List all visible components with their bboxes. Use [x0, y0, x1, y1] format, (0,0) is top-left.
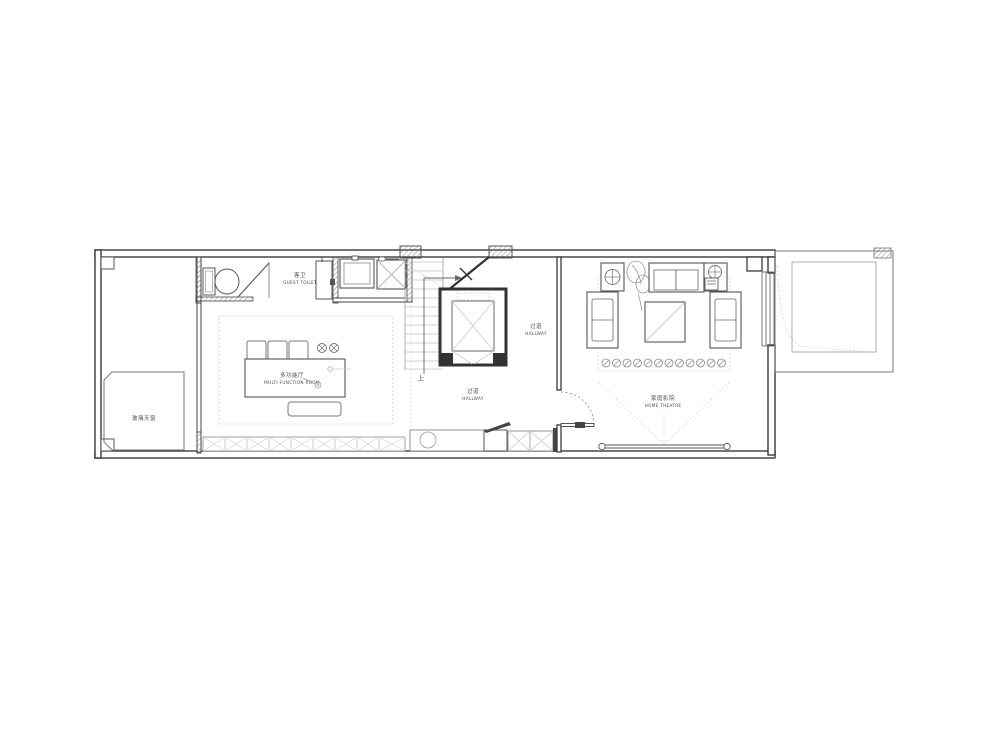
- hallway-upper-label-zh: 过道: [530, 322, 542, 330]
- vanity-cabinet-icon: [316, 257, 335, 299]
- multi-function-label-zh: 多功能厅: [280, 371, 304, 379]
- hallway-lower-label-zh: 过道: [467, 387, 479, 395]
- hallway-lower-label-en: HALLWAY: [462, 396, 484, 401]
- guest-toilet-label-zh: 客卫: [294, 271, 306, 279]
- column-hatch: [489, 246, 512, 258]
- guest-toilet-room: 客卫 GUEST TOILET: [196, 257, 338, 303]
- wall-notch: [101, 257, 114, 269]
- door-swing: [561, 392, 594, 428]
- wall-notch: [747, 257, 762, 271]
- wardrobe-boxes: [508, 431, 553, 451]
- toilet-icon: [203, 268, 239, 295]
- shower-screen-icon: [238, 262, 269, 298]
- two-seat-sofa: [649, 263, 704, 292]
- terrace: [775, 251, 893, 372]
- hall-counter-with-sink: [410, 430, 487, 451]
- floor-plan-page: 玻璃天窗 客卫 GUEST TOILET: [0, 0, 1000, 750]
- window: [762, 272, 774, 346]
- terrace-opening: [792, 262, 876, 352]
- hallway-upper-label-en: HALLWAY: [525, 331, 547, 336]
- armchair-right: [710, 292, 741, 348]
- skylight-outline: [104, 372, 184, 450]
- projection-screen: [599, 443, 730, 449]
- home-theatre-room: 家庭影院 HOME THEATRE: [557, 257, 774, 452]
- side-table-with-lamp: [601, 263, 624, 291]
- multi-function-room: 多功能厅 MULTI-FUNCTION ROOM: [203, 316, 405, 451]
- column-hatch: [400, 246, 421, 258]
- guest-toilet-label-en: GUEST TOILET: [283, 280, 317, 285]
- stair-up-label: 上: [418, 373, 425, 382]
- shoe-cabinet-icon: [484, 422, 511, 451]
- side-table-with-lamp: [704, 263, 727, 291]
- ceiling-light-icon: [318, 344, 339, 353]
- basin-icon: [340, 256, 374, 288]
- projection-cone: [597, 381, 731, 444]
- center-table: [645, 302, 685, 342]
- slope-line: [777, 266, 870, 352]
- glass-skylight-zone: 玻璃天窗: [104, 257, 201, 453]
- floor-plan-drawing: 玻璃天窗 客卫 GUEST TOILET: [0, 0, 1000, 750]
- speaker-row: [602, 359, 726, 367]
- elevator: [440, 289, 506, 365]
- home-theatre-label-zh: 家庭影院: [651, 394, 675, 402]
- bench-icon: [288, 402, 341, 416]
- washing-machine-icon: [377, 257, 406, 289]
- armchair-left: [587, 292, 618, 348]
- laundry-niche: [333, 256, 412, 302]
- storage-cabinet-row: [203, 437, 405, 451]
- stool-icon: [247, 341, 308, 361]
- column-hatch: [874, 248, 891, 258]
- break-line: [447, 257, 489, 291]
- home-theatre-label-en: HOME THEATRE: [645, 403, 682, 408]
- glass-skylight-label: 玻璃天窗: [132, 414, 156, 422]
